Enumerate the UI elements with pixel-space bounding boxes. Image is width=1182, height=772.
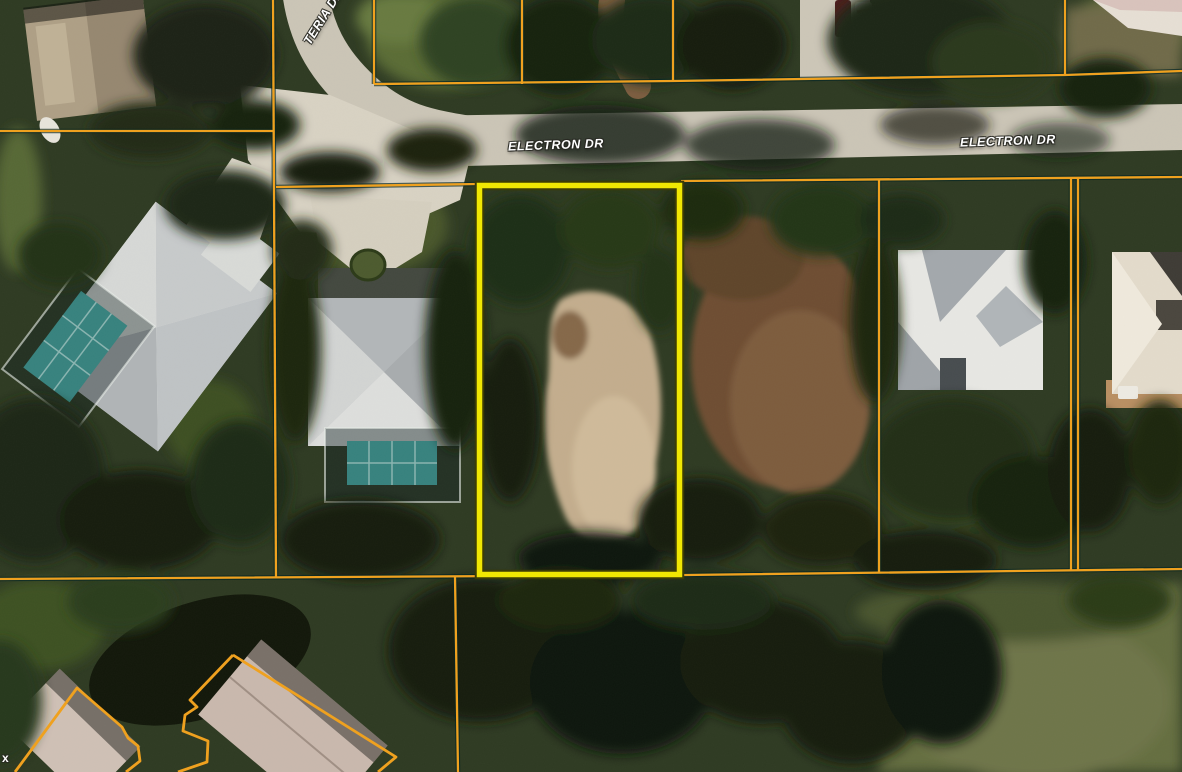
photo-grain bbox=[0, 0, 1182, 772]
satellite-map-viewport[interactable]: TERIA DR ELECTRON DR ELECTRON DR x bbox=[0, 0, 1182, 772]
aerial-imagery bbox=[0, 0, 1182, 772]
corner-label-fragment: x bbox=[2, 751, 9, 765]
